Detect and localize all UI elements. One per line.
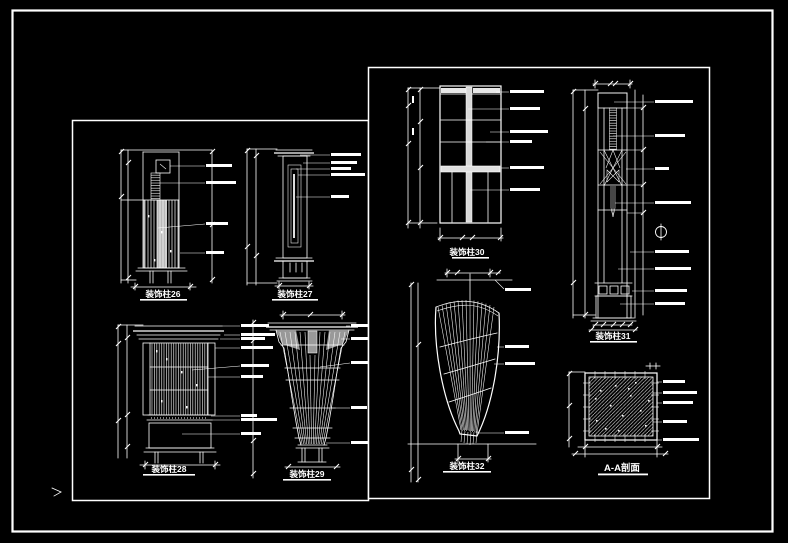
annotation-label	[331, 161, 357, 164]
drawing-title-31: 装饰柱31	[595, 331, 631, 341]
title-underline	[283, 479, 331, 481]
annotation-label	[505, 362, 535, 365]
cad-canvas: 装饰柱26	[0, 0, 788, 543]
stray-mark	[52, 488, 61, 496]
annotation-label	[505, 288, 531, 291]
annotation-label	[510, 188, 540, 191]
annotation-label	[655, 100, 693, 103]
annotation-label	[505, 431, 529, 434]
cad-sheet: 装饰柱26	[0, 0, 788, 543]
drawing-title-32: 装饰柱32	[449, 461, 485, 471]
annotation-label	[510, 166, 544, 169]
annotation-label	[655, 289, 687, 292]
annotation-label	[655, 302, 685, 305]
drawing-title-27: 装饰柱27	[277, 289, 313, 299]
annotation-label	[663, 420, 687, 423]
left-viewport: 装饰柱26	[73, 121, 382, 501]
annotation-label	[663, 380, 685, 383]
annotation-label	[663, 391, 697, 394]
annotation-label	[206, 251, 224, 254]
annotation-label	[655, 250, 689, 253]
annotation-label	[241, 346, 273, 349]
title-underline	[272, 299, 318, 301]
annotation-label	[206, 164, 232, 167]
annotation-label	[241, 418, 277, 421]
drawing-title-26: 装饰柱26	[145, 289, 181, 299]
title-underline	[452, 257, 489, 259]
title-underline	[143, 474, 195, 476]
annotation-label	[510, 140, 532, 143]
drawing-title-28: 装饰柱28	[151, 464, 187, 474]
annotation-label	[505, 345, 529, 348]
annotation-label	[206, 181, 236, 184]
annotation-label	[655, 201, 691, 204]
annotation-label	[331, 195, 349, 198]
annotation-label	[351, 406, 367, 409]
annotation-label	[241, 375, 263, 378]
right-viewport: 装饰柱30	[369, 68, 710, 499]
annotation-label	[510, 107, 540, 110]
title-underline	[590, 341, 637, 343]
annotation-label	[655, 134, 685, 137]
annotation-label	[241, 333, 275, 336]
annotation-label	[663, 401, 693, 404]
title-underline	[443, 471, 491, 473]
title-underline	[598, 474, 648, 476]
annotation-label	[206, 222, 228, 225]
annotation-label	[331, 167, 351, 170]
annotation-label	[510, 130, 548, 133]
annotation-label	[241, 432, 261, 435]
annotation-label	[331, 153, 361, 156]
annotation-label	[241, 324, 269, 327]
annotation-label	[331, 173, 365, 176]
drawing-title-29: 装饰柱29	[289, 469, 325, 479]
annotation-label	[655, 167, 669, 170]
drawing-title-aa: A-A剖面	[604, 462, 640, 474]
annotation-label	[510, 90, 544, 93]
annotation-label	[241, 414, 257, 417]
annotation-label	[663, 438, 699, 441]
title-underline	[140, 299, 187, 301]
drawing-title-30: 装饰柱30	[449, 247, 485, 257]
annotation-label	[241, 364, 269, 367]
annotation-label	[655, 267, 691, 270]
